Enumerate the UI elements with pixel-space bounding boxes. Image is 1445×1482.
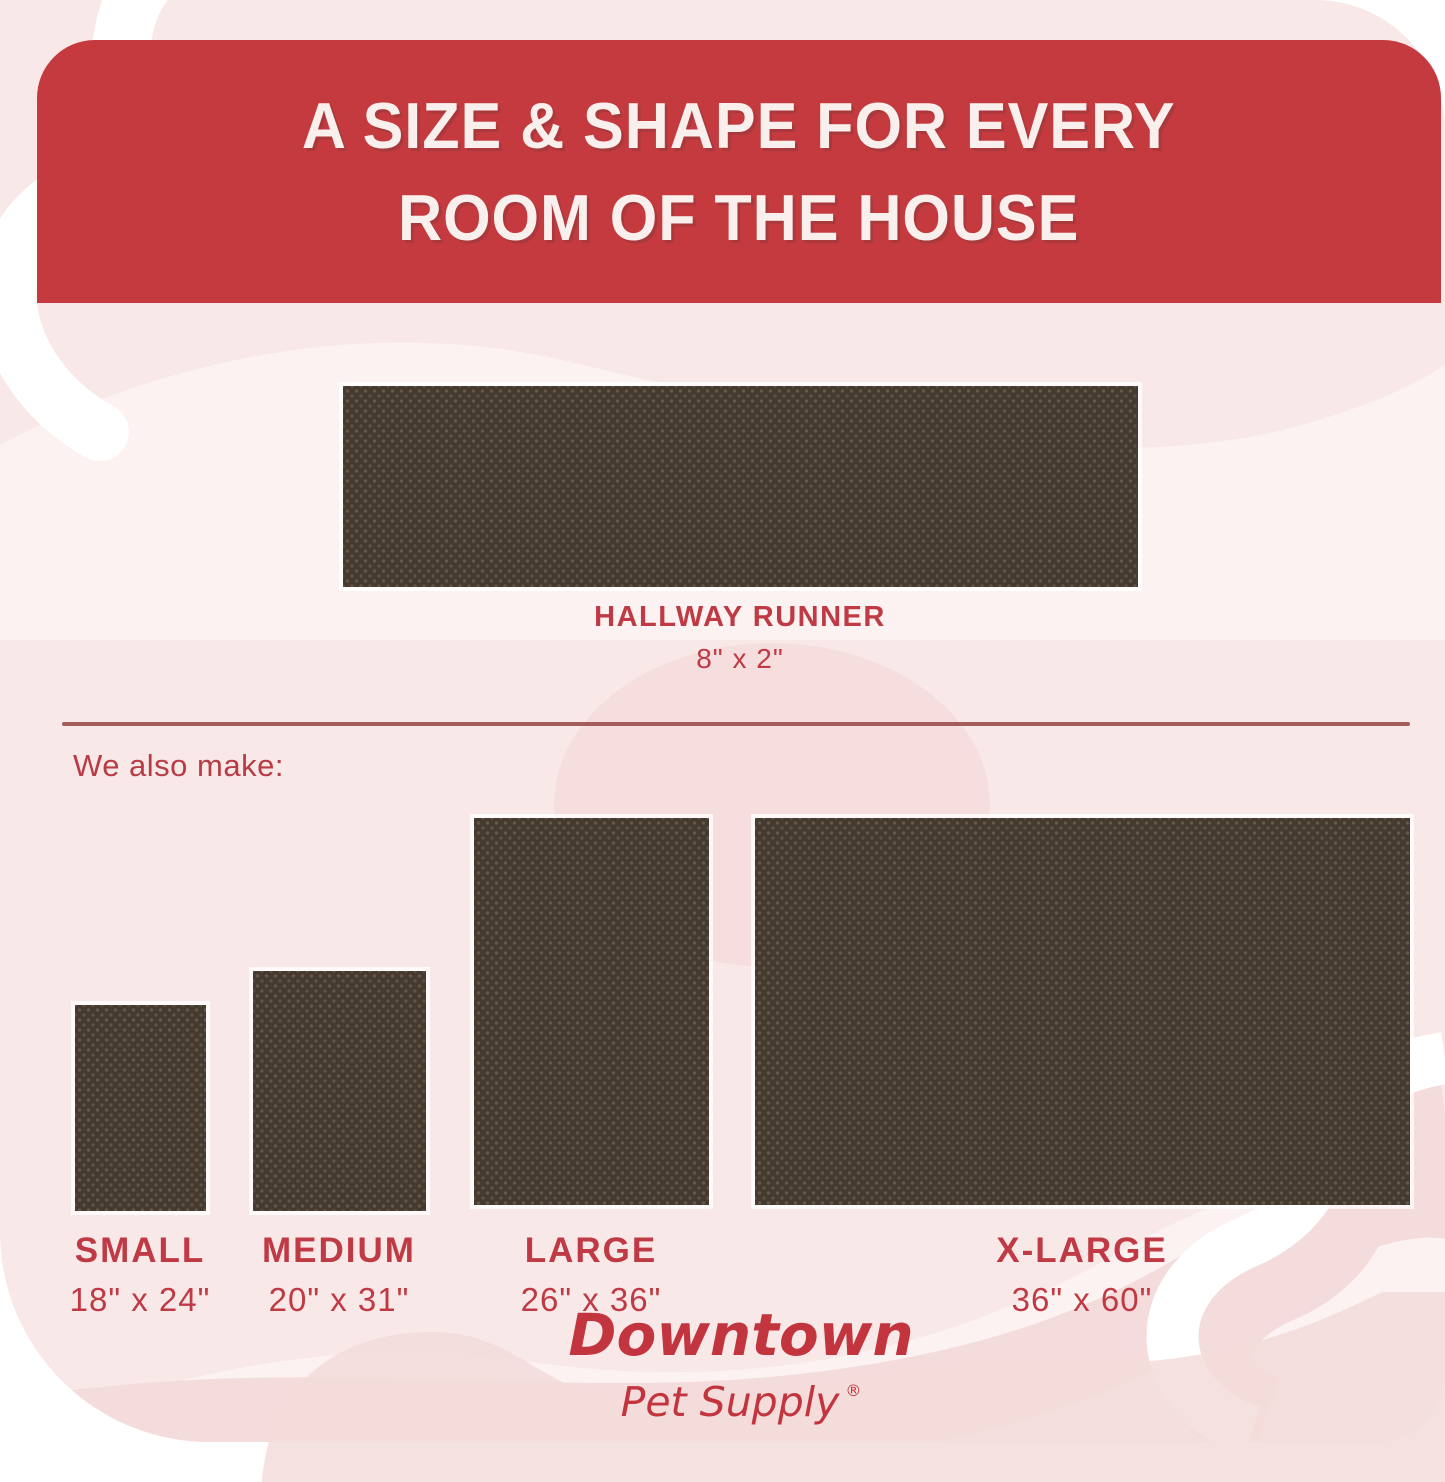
divider-line [62, 722, 1410, 726]
page-title: A SIZE & SHAPE FOR EVERY ROOM OF THE HOU… [302, 80, 1176, 264]
header-banner: A SIZE & SHAPE FOR EVERY ROOM OF THE HOU… [37, 40, 1441, 303]
size-guide-infographic: A SIZE & SHAPE FOR EVERY ROOM OF THE HOU… [0, 0, 1445, 1482]
hallway-runner-mat [343, 386, 1138, 587]
registered-mark: ® [845, 1381, 861, 1400]
hallway-runner-size: 8" x 2" [540, 643, 940, 675]
label-medium: MEDIUM 20" x 31" [209, 1231, 469, 1319]
label-large-name: LARGE [461, 1231, 721, 1271]
brand-subtitle: Pet Supply® [441, 1368, 1041, 1425]
brand-name: Downtown [441, 1304, 1041, 1366]
mat-medium [253, 971, 426, 1211]
label-medium-size: 20" x 31" [209, 1281, 469, 1319]
hallway-runner-label: HALLWAY RUNNER 8" x 2" [540, 601, 940, 675]
page-title-line2: ROOM OF THE HOUSE [302, 172, 1176, 264]
brand-subtitle-text: Pet Supply [621, 1378, 840, 1426]
also-make-text: We also make: [73, 748, 284, 784]
mat-xlarge [755, 818, 1410, 1205]
brand-logo: Downtown Pet Supply® [441, 1304, 1041, 1425]
hallway-runner-name: HALLWAY RUNNER [540, 601, 940, 634]
mat-large [474, 818, 709, 1205]
mat-small [75, 1005, 206, 1211]
label-xlarge-name: X-LARGE [952, 1231, 1212, 1271]
page-title-line1: A SIZE & SHAPE FOR EVERY [302, 80, 1176, 172]
label-medium-name: MEDIUM [209, 1231, 469, 1271]
